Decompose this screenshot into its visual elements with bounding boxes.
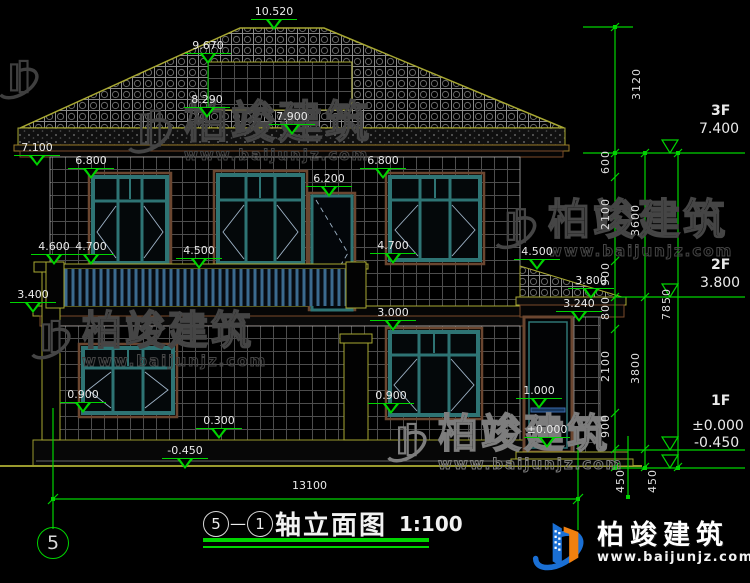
cad-elevation-drawing: 柏竣建筑 www.baijunjz.com 柏竣建筑 www.baijunjz.… [0,0,750,583]
watermark-bottom: 柏竣建筑 www.baijunjz.com [380,413,623,473]
marker-plinth-top: 0.300 [196,415,242,439]
marker-sill2f-right: 4.700 [370,240,416,264]
marker-eave: 7.100 [14,142,60,166]
marker-dormer-bottom: 8.290 [184,94,230,118]
dim-7850: 7850 [660,288,673,320]
marker-value: 9.670 [185,40,231,52]
watermark-building-icon [380,415,432,471]
dim-600: 600 [599,150,612,174]
marker-value: 7.100 [14,142,60,154]
marker-value: 6.200 [306,173,352,185]
dim-900-upper: 900 [599,262,612,286]
watermark-url: www.baijunjz.com [438,455,623,473]
watermark-left: 柏竣建筑 www.baijunjz.com [24,310,267,370]
marker-window2f-top-left: 6.800 [68,155,114,179]
title-axis-start: 5 [203,511,229,537]
watermark-url: www.baijunjz.com [548,242,733,260]
marker-porch-beam: 3.240 [556,298,602,322]
marker-value: 8.290 [184,94,230,106]
window-2f-center [214,171,307,267]
marker-ground: -0.450 [162,445,208,469]
marker-value: 3.240 [556,298,602,310]
floor-label-1f: 1F [711,393,730,409]
company-logo: 柏竣建筑 www.baijunjz.com [527,511,750,575]
marker-window1f-top: 3.000 [370,307,416,331]
marker-value: 1.000 [516,385,562,397]
marker-window2f-top-right: 6.800 [360,155,406,179]
watermark-building-icon [24,312,76,368]
floor-level-3f: 7.400 [699,121,739,137]
title-scale: 1:100 [399,512,463,536]
marker-ridge: 10.520 [251,6,297,30]
marker-sill1f-left: 0.900 [60,389,106,413]
watermark-brand: 柏竣建筑 [82,310,267,352]
dim-450-inner: 450 [614,469,627,493]
floor-level-2f: 3.800 [700,275,740,291]
floor-label-2f: 2F [711,257,730,273]
marker-value: 0.300 [196,415,242,427]
floor-level-ground: -0.450 [694,435,739,451]
marker-value: 3.400 [10,289,56,301]
marker-value: 7.900 [269,111,315,123]
floor-label-3f: 3F [711,103,730,119]
axis-bubble-5: 5 [37,527,69,559]
marker-value: -0.450 [162,445,208,457]
dim-2100-upper: 2100 [599,198,612,230]
marker-porch-rail: 1.000 [516,385,562,409]
marker-porch-floor: ±0.000 [524,424,570,448]
marker-roof-mid: 7.900 [269,111,315,135]
title-underline-2 [203,546,429,548]
title-axis-end: 1 [247,511,273,537]
marker-value: 4.700 [68,241,114,253]
drawing-title: 5 — 1 轴立面图 1:100 [203,505,463,542]
watermark-url: www.baijunjz.com [184,146,372,164]
watermark-building-icon [120,101,178,163]
marker-value: ±0.000 [524,424,570,436]
company-logo-url: www.baijunjz.com [597,550,750,565]
dim-3800: 3800 [629,352,642,384]
marker-value: 4.700 [370,240,416,252]
marker-value: 3.000 [370,307,416,319]
dim-2100-lower: 2100 [599,350,612,382]
title-text: 轴立面图 [275,505,387,542]
watermark-logo-fragment [0,52,44,108]
dim-overall-width: 13100 [292,479,327,492]
marker-sill1f-right: 0.900 [368,390,414,414]
marker-value: 4.500 [514,246,560,258]
marker-value: 10.520 [251,6,297,18]
marker-value: 6.800 [360,155,406,167]
middle-pilaster [344,343,368,440]
watermark-url: www.baijunjz.com [82,352,267,370]
marker-value: 4.500 [176,245,222,257]
marker-porch-roof-top: 4.500 [514,246,560,270]
marker-balcony-slab: 3.400 [10,289,56,313]
dim-3120: 3120 [630,68,643,100]
company-logo-brand: 柏竣建筑 [597,521,750,551]
marker-value: 0.900 [368,390,414,402]
marker-value: 0.900 [60,389,106,401]
marker-value: 6.800 [68,155,114,167]
marker-dormer-top: 9.670 [185,40,231,64]
axis-number: 5 [47,532,59,554]
dim-450-middle: 450 [646,469,659,493]
floor-level-1f: ±0.000 [692,418,744,434]
dim-900-lower: 900 [599,414,612,438]
dim-3600: 3600 [629,204,642,236]
marker-balcony-rail: 4.500 [176,245,222,269]
watermark-top: 柏竣建筑 www.baijunjz.com [120,100,372,164]
marker-balcony-door-top: 6.200 [306,173,352,197]
dim-800: 800 [599,296,612,320]
title-dash: — [230,514,246,533]
marker-sill2f-left: 4.700 [68,241,114,265]
company-logo-icon [527,511,593,575]
title-underline [203,538,429,542]
